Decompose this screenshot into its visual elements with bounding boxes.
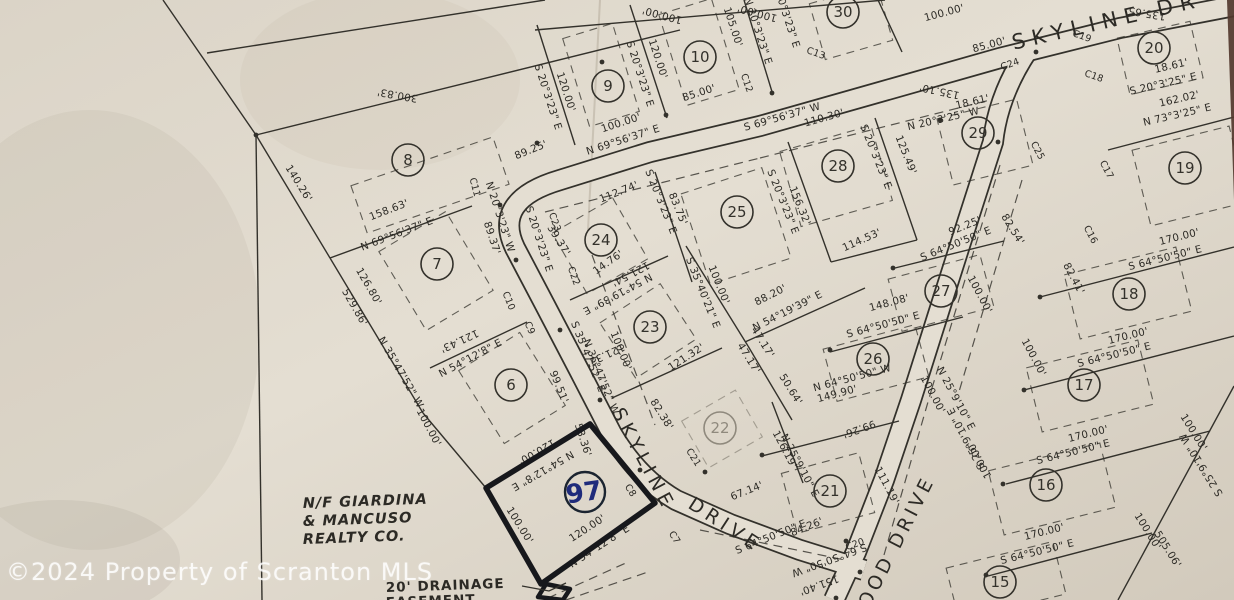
lot-number: 27: [931, 282, 950, 300]
lot-number: 6: [506, 376, 516, 394]
lot-number: 16: [1036, 476, 1055, 494]
survey-point: [996, 140, 1001, 145]
plat-map-scan: 300.83'140.26'158.63'N 69°56'37" E89.25'…: [0, 0, 1234, 600]
survey-point: [600, 60, 605, 65]
lot-number: 28: [828, 157, 847, 175]
lot-number: 19: [1175, 159, 1194, 177]
lot-number: 22: [710, 419, 729, 437]
survey-point: [1001, 482, 1006, 487]
lot-number: 20: [1144, 39, 1163, 57]
survey-point: [703, 470, 708, 475]
lot-number: 24: [591, 231, 610, 249]
lot-number: 23: [640, 318, 659, 336]
survey-point: [770, 91, 775, 96]
survey-point: [664, 113, 669, 118]
survey-point: [558, 328, 563, 333]
lot-number: 10: [690, 48, 709, 66]
lot-number: 17: [1074, 376, 1093, 394]
lot-number: 15: [990, 573, 1009, 591]
lot-number: 21: [820, 482, 839, 500]
survey-point: [1022, 388, 1027, 393]
lot-97-number: 97: [564, 476, 604, 511]
lot-number: 9: [603, 77, 613, 95]
survey-point: [514, 258, 519, 263]
survey-point: [254, 133, 259, 138]
plat-map-drawing: 300.83'140.26'158.63'N 69°56'37" E89.25'…: [0, 0, 1234, 600]
lot-number: 29: [968, 124, 987, 142]
lot-number: 25: [727, 203, 746, 221]
lot-number: 8: [403, 151, 413, 169]
lot-number: 26: [863, 350, 882, 368]
survey-point: [858, 570, 863, 575]
lot-number: 30: [833, 3, 852, 21]
lot-number: 18: [1119, 285, 1138, 303]
survey-point: [1038, 295, 1043, 300]
survey-point: [828, 348, 833, 353]
survey-point: [760, 453, 765, 458]
survey-point: [1034, 50, 1039, 55]
survey-point: [891, 266, 896, 271]
survey-point: [598, 398, 603, 403]
lot-number: 7: [432, 255, 442, 273]
